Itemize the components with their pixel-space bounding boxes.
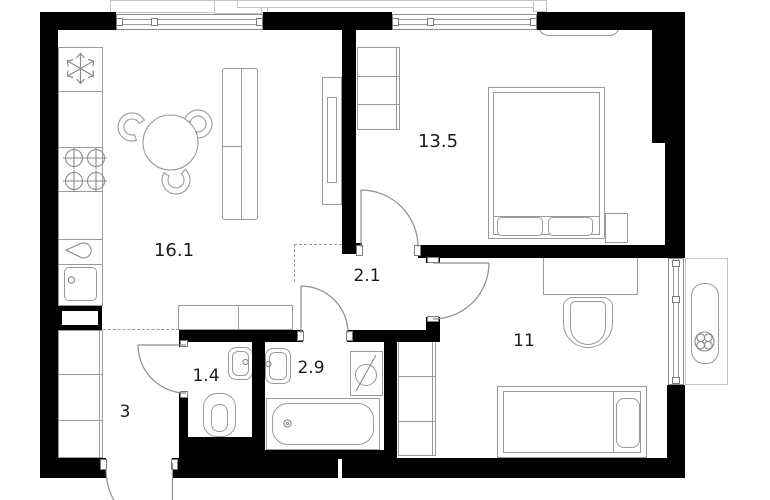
zone-boundary-dashed bbox=[294, 244, 295, 282]
nightstand bbox=[605, 213, 628, 243]
door-jamb bbox=[427, 316, 439, 322]
shelf-line bbox=[399, 376, 435, 377]
wall-bottom bbox=[40, 458, 106, 478]
window-mullion bbox=[672, 260, 680, 267]
sofa-cushion-line bbox=[223, 146, 241, 147]
window-frame-line bbox=[393, 19, 536, 20]
door-jamb bbox=[100, 459, 107, 470]
hallway-cabinet bbox=[178, 305, 293, 330]
zone-boundary-dashed bbox=[103, 329, 179, 330]
vent-shaft-niche bbox=[62, 311, 98, 325]
room-label-hallway: 2.1 bbox=[343, 267, 391, 286]
dining-table bbox=[143, 115, 198, 170]
wall-left bbox=[40, 12, 58, 478]
zone-boundary-dashed bbox=[294, 244, 342, 245]
counter-divider bbox=[59, 91, 102, 92]
pillow bbox=[548, 217, 593, 236]
window-frame-line bbox=[117, 19, 262, 20]
neighbor-balcony-outline bbox=[237, 0, 537, 8]
wall-right bbox=[665, 143, 685, 258]
bathtub-basin bbox=[272, 403, 374, 445]
window-mullion bbox=[151, 18, 158, 26]
shelf-line bbox=[358, 104, 399, 105]
window-frame-line bbox=[393, 24, 536, 25]
wall-top bbox=[40, 12, 116, 30]
shelf-line bbox=[59, 374, 102, 375]
washing-machine-drum bbox=[355, 364, 377, 386]
ac-unit bbox=[691, 283, 719, 364]
wall-top bbox=[263, 12, 392, 30]
toilet-bowl bbox=[211, 404, 228, 432]
pillow bbox=[616, 398, 640, 448]
window-mullion bbox=[116, 18, 123, 26]
shelf-line bbox=[358, 76, 399, 77]
window-mullion bbox=[256, 18, 263, 26]
room-label-bedroom-2: 11 bbox=[500, 332, 548, 351]
room-label-living-kitchen: 16.1 bbox=[150, 241, 198, 261]
window-frame-line bbox=[117, 24, 262, 25]
double-bed-mattress bbox=[493, 92, 600, 235]
door-jamb bbox=[346, 331, 353, 341]
room-label-bedroom: 13.5 bbox=[414, 132, 462, 152]
counter-divider bbox=[59, 264, 102, 265]
door-jamb bbox=[180, 391, 188, 398]
kitchen-sink bbox=[64, 267, 97, 301]
pillow bbox=[497, 217, 543, 236]
wall-wc-bath bbox=[252, 330, 265, 477]
desk bbox=[543, 256, 638, 295]
wall-under-toilet bbox=[186, 437, 252, 458]
window-mullion bbox=[672, 377, 680, 384]
sofa bbox=[222, 68, 258, 220]
wardrobe-room11 bbox=[398, 340, 436, 456]
counter-divider bbox=[59, 147, 102, 148]
wall-bath-right bbox=[384, 330, 397, 477]
dining-chairs-icon bbox=[118, 110, 212, 194]
window-frame-line bbox=[678, 259, 679, 384]
shelf-line bbox=[399, 421, 435, 422]
door-wc bbox=[138, 345, 186, 393]
wall-bottom bbox=[172, 458, 685, 478]
wall-bedroom-bottom bbox=[418, 245, 685, 258]
wardrobe-front-line bbox=[99, 331, 100, 457]
room-label-bathroom: 2.9 bbox=[287, 359, 335, 378]
door-bedroom bbox=[361, 190, 418, 247]
counter-divider bbox=[59, 239, 102, 240]
wardrobe-front-line bbox=[432, 341, 433, 455]
window bbox=[392, 14, 537, 30]
door-room11 bbox=[433, 263, 489, 319]
window-mullion bbox=[427, 18, 434, 26]
wall-joint bbox=[338, 459, 342, 478]
door-bathroom bbox=[301, 286, 348, 333]
wc-sink-basin bbox=[232, 351, 249, 376]
room-label-wc: 1.4 bbox=[182, 367, 230, 386]
counter-divider bbox=[59, 191, 102, 192]
window-mullion bbox=[672, 296, 680, 303]
wall-living-bedroom bbox=[342, 12, 356, 252]
window-mullion bbox=[530, 18, 537, 26]
door-jamb bbox=[297, 331, 304, 341]
cabinet-divider bbox=[238, 306, 239, 329]
desk-chair-seat bbox=[570, 301, 606, 345]
neighbor-balcony-outline bbox=[533, 0, 547, 12]
wall-hall-bottom bbox=[186, 330, 303, 342]
tv bbox=[327, 97, 337, 183]
bed-divider bbox=[613, 392, 614, 452]
door-jamb bbox=[180, 340, 188, 347]
wardrobe-bedroom bbox=[357, 47, 400, 130]
wardrobe-front-line bbox=[396, 48, 397, 129]
floor-plan: 16.1 13.5 2.1 3 1.4 2.9 11 bbox=[0, 0, 770, 500]
corridor-wardrobe bbox=[58, 330, 103, 458]
window bbox=[668, 258, 684, 385]
door-entry bbox=[106, 463, 173, 500]
bath-sink-basin bbox=[269, 352, 287, 380]
window bbox=[116, 14, 263, 30]
shelf-line bbox=[59, 420, 102, 421]
room-label-corridor: 3 bbox=[101, 403, 149, 422]
door-jamb bbox=[356, 245, 363, 256]
wall-right bbox=[652, 12, 685, 143]
window-mullion bbox=[392, 18, 399, 26]
wall-under-bath bbox=[265, 450, 384, 460]
sofa-back-line bbox=[241, 69, 242, 219]
door-jamb bbox=[414, 245, 421, 256]
door-jamb bbox=[427, 257, 439, 263]
window-frame-line bbox=[673, 259, 674, 384]
wall-right-bottom bbox=[667, 385, 685, 478]
door-jamb bbox=[171, 459, 178, 470]
